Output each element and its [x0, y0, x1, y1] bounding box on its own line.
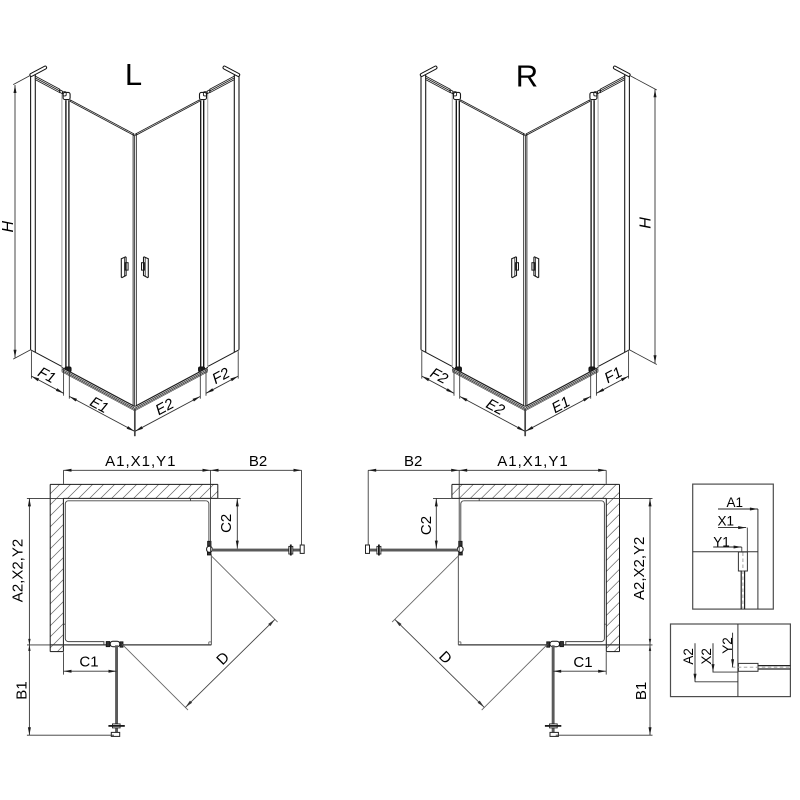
svg-text:R: R [516, 59, 538, 94]
svg-text:C1: C1 [573, 654, 592, 671]
svg-text:B2: B2 [249, 453, 267, 470]
svg-text:A2,X2,Y2: A2,X2,Y2 [631, 537, 648, 600]
svg-text:H: H [638, 217, 655, 229]
svg-text:C1: C1 [79, 654, 98, 671]
svg-text:B1: B1 [633, 682, 650, 700]
svg-text:B2: B2 [404, 453, 422, 470]
svg-text:X2: X2 [699, 648, 714, 665]
svg-text:X1: X1 [718, 514, 735, 529]
svg-text:B1: B1 [14, 681, 31, 699]
svg-text:L: L [125, 57, 142, 92]
svg-text:A2: A2 [681, 648, 696, 665]
svg-text:C2: C2 [218, 514, 235, 533]
svg-text:A1,X1,Y1: A1,X1,Y1 [497, 453, 568, 470]
svg-text:C2: C2 [418, 516, 435, 535]
svg-text:A1: A1 [727, 495, 744, 510]
svg-text:H: H [0, 220, 17, 232]
svg-text:A2,X2,Y2: A2,X2,Y2 [10, 539, 27, 602]
svg-text:Y1: Y1 [713, 534, 730, 549]
svg-text:A1,X1,Y1: A1,X1,Y1 [105, 453, 176, 470]
svg-text:Y2: Y2 [720, 637, 735, 654]
